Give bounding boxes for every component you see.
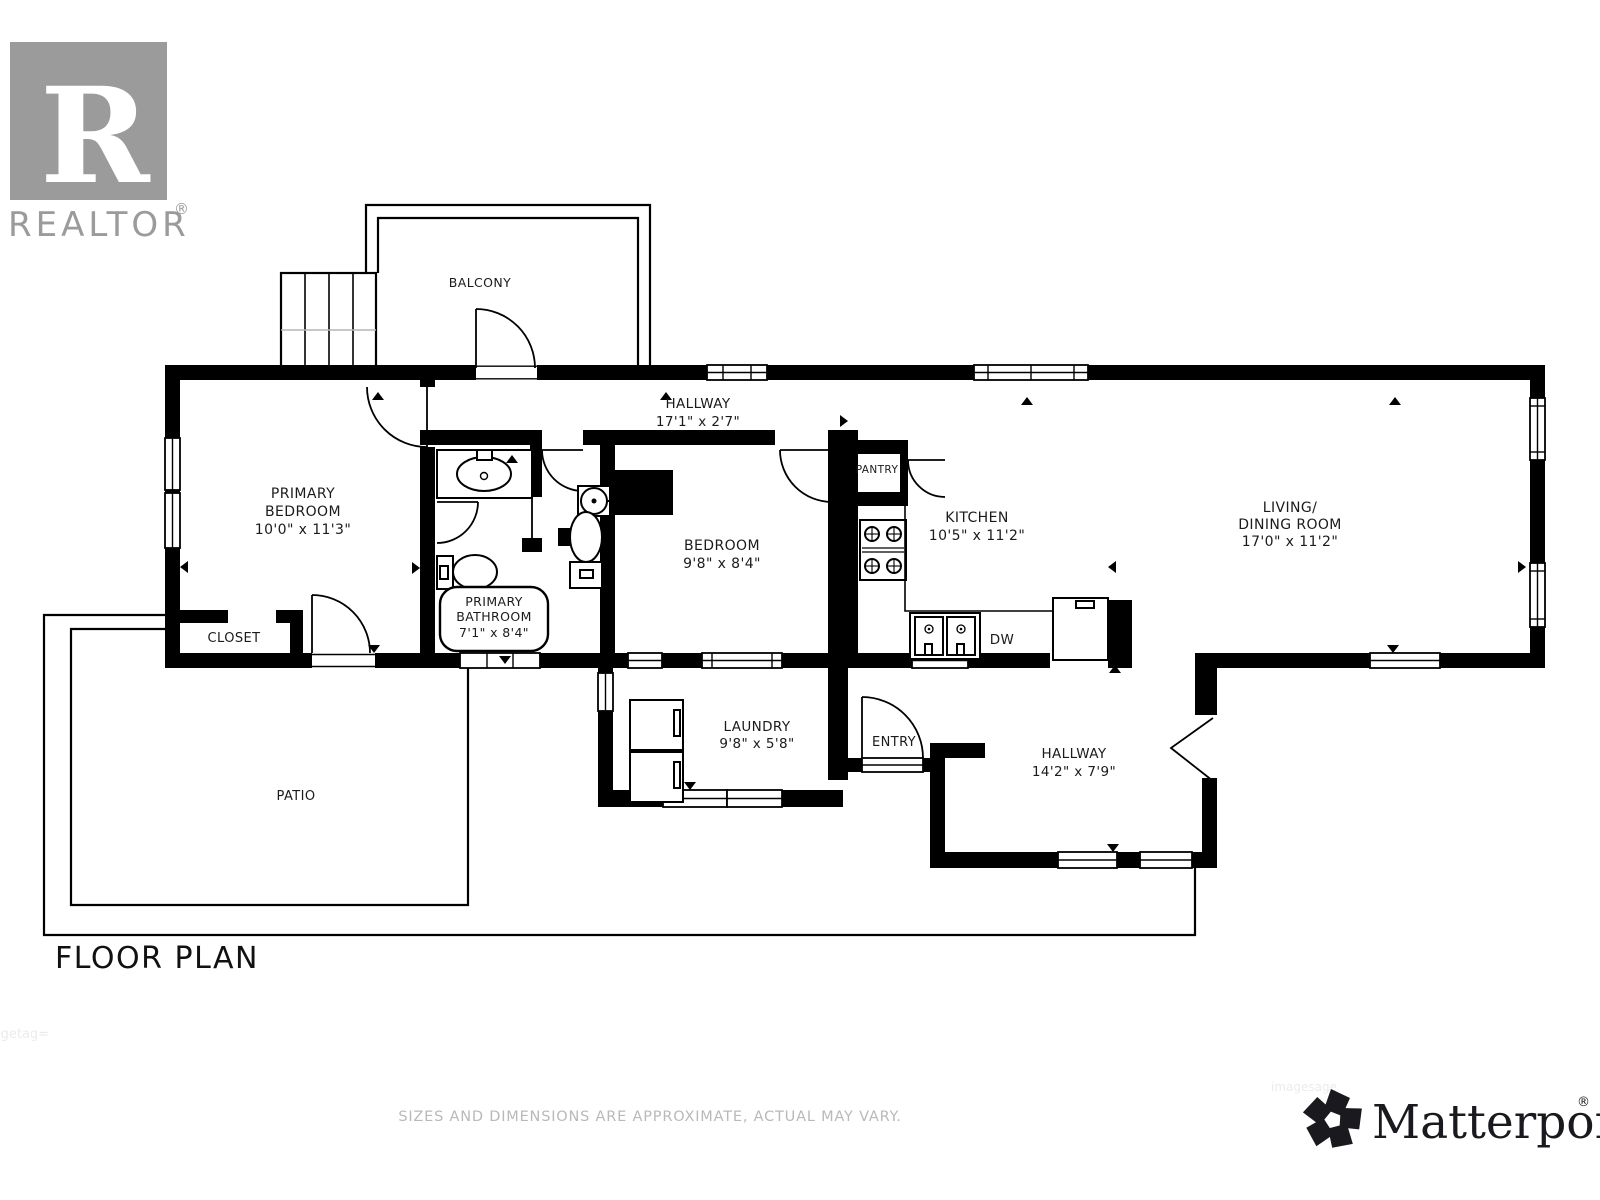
matterport-pinwheel-icon bbox=[1301, 1089, 1368, 1155]
window bbox=[1370, 653, 1440, 668]
wall-bottom-left bbox=[165, 653, 613, 668]
matterport-logo-icon: Matterport ® bbox=[1301, 1089, 1600, 1155]
stove-icon bbox=[860, 520, 906, 580]
label-primary-bedroom-2: BEDROOM bbox=[265, 504, 341, 520]
label-primary-bedroom-1: PRIMARY bbox=[271, 486, 335, 502]
label-closet: CLOSET bbox=[208, 631, 261, 646]
wall-pantry-bottom bbox=[828, 492, 908, 506]
floor-plan-canvas: R REALTOR ® bbox=[0, 0, 1600, 1200]
patio-door-threshold bbox=[312, 653, 375, 668]
window bbox=[598, 673, 613, 711]
wall-hall-left bbox=[930, 743, 945, 868]
label-hallway-lower-dims: 14'2" x 7'9" bbox=[1032, 764, 1116, 780]
vanity-door bbox=[437, 502, 478, 543]
window bbox=[1530, 563, 1545, 627]
bathroom-vanity-sink-icon bbox=[437, 450, 532, 498]
realtor-logo-icon: R REALTOR ® bbox=[8, 42, 190, 245]
label-hallway-top: HALLWAY bbox=[665, 396, 730, 412]
label-primary-bathroom-1: PRIMARY bbox=[465, 594, 523, 609]
realtor-registered-mark: ® bbox=[174, 200, 189, 218]
label-living-1: LIVING/ bbox=[1263, 500, 1317, 516]
realtor-wordmark: REALTOR bbox=[8, 205, 190, 245]
entry-threshold bbox=[862, 758, 923, 772]
bedroom-patio-door bbox=[312, 595, 370, 653]
wall-hallway-strip-b bbox=[583, 430, 775, 445]
bedroom-door bbox=[780, 450, 832, 502]
floor-plan-page: R REALTOR ® bbox=[0, 0, 1600, 1200]
label-patio: PATIO bbox=[277, 789, 316, 804]
label-hallway-lower: HALLWAY bbox=[1041, 746, 1106, 762]
washer-dryer-icon bbox=[630, 700, 683, 802]
window bbox=[165, 438, 180, 490]
label-entry: ENTRY bbox=[872, 735, 916, 750]
label-primary-bathroom-2: BATHROOM bbox=[456, 609, 532, 624]
wall-fridge-stub bbox=[1108, 600, 1132, 668]
wall-bedroom-kitchen bbox=[828, 430, 858, 653]
wall-pantry-right bbox=[900, 440, 908, 506]
label-laundry-dims: 9'8" x 5'8" bbox=[719, 736, 794, 752]
window bbox=[707, 365, 767, 380]
matterport-registered-mark: ® bbox=[1577, 1095, 1590, 1110]
matterport-wordmark: Matterport bbox=[1372, 1095, 1600, 1150]
balcony-inner-line bbox=[378, 218, 638, 365]
walls bbox=[165, 365, 1545, 868]
window bbox=[460, 653, 540, 668]
label-laundry: LAUNDRY bbox=[723, 719, 790, 735]
window bbox=[1058, 852, 1117, 868]
fridge-icon bbox=[1053, 598, 1108, 660]
window bbox=[165, 493, 180, 548]
wall-bed1-bath-lower bbox=[420, 447, 435, 653]
label-hallway-top-dims: 17'1" x 2'7" bbox=[656, 414, 740, 430]
hallway-ajar-door bbox=[1171, 718, 1213, 781]
balcony-door bbox=[476, 309, 535, 368]
page-title: FLOOR PLAN bbox=[55, 941, 259, 976]
window bbox=[974, 365, 1088, 380]
disclaimer-text: SIZES AND DIMENSIONS ARE APPROXIMATE, AC… bbox=[398, 1109, 901, 1125]
wall-bed1-bath-upper bbox=[420, 365, 435, 387]
wall-hallway-strip-a bbox=[420, 430, 542, 445]
label-dishwasher: DW bbox=[990, 632, 1015, 648]
pantry-door bbox=[908, 460, 945, 497]
toilet2-icon bbox=[570, 512, 602, 588]
wall-living-corner-stub bbox=[1195, 653, 1217, 715]
label-balcony: BALCONY bbox=[449, 275, 511, 290]
realtor-logo-r: R bbox=[40, 59, 151, 214]
label-pantry: PANTRY bbox=[856, 464, 899, 476]
label-kitchen: KITCHEN bbox=[945, 510, 1008, 526]
room-labels: BALCONY HALLWAY 17'1" x 2'7" PRIMARY BED… bbox=[208, 275, 1342, 804]
label-living-dims: 17'0" x 11'2" bbox=[1242, 534, 1338, 550]
wall-entry-sill-left bbox=[828, 758, 862, 772]
kitchen-sink-icon bbox=[910, 613, 980, 659]
window bbox=[1530, 398, 1545, 460]
wall-top bbox=[165, 365, 1545, 380]
label-kitchen-dims: 10'5" x 11'2" bbox=[929, 528, 1025, 544]
balcony-door-opening bbox=[476, 365, 537, 380]
label-living-2: DINING ROOM bbox=[1238, 517, 1342, 533]
window bbox=[1140, 852, 1192, 868]
wall-hall-right bbox=[1202, 778, 1217, 868]
wall-closet-a bbox=[180, 610, 228, 623]
window bbox=[702, 653, 782, 668]
wall-closet-stub bbox=[290, 623, 303, 653]
wall-bath-stub-a bbox=[522, 538, 542, 552]
label-bedroom: BEDROOM bbox=[684, 538, 760, 554]
wall-closet-b bbox=[276, 610, 303, 623]
label-primary-bedroom-dims: 10'0" x 11'3" bbox=[255, 522, 351, 538]
patio-inner-line bbox=[71, 629, 468, 905]
watermark-right: imagesage bbox=[1271, 1080, 1337, 1094]
window bbox=[727, 790, 782, 807]
label-bedroom-dims: 9'8" x 8'4" bbox=[683, 556, 761, 572]
primary-bathroom-door bbox=[542, 450, 583, 491]
stairs bbox=[281, 273, 376, 372]
wall-bedroom-chase bbox=[613, 470, 673, 515]
window bbox=[628, 653, 662, 668]
toilet-icon bbox=[437, 555, 497, 589]
wall-bath-bedroom bbox=[600, 445, 615, 653]
watermark-left: igetag= bbox=[0, 1027, 49, 1042]
label-primary-bathroom-dims: 7'1" x 8'4" bbox=[459, 625, 529, 640]
primary-bathroom-bubble: PRIMARY BATHROOM 7'1" x 8'4" bbox=[440, 587, 548, 651]
